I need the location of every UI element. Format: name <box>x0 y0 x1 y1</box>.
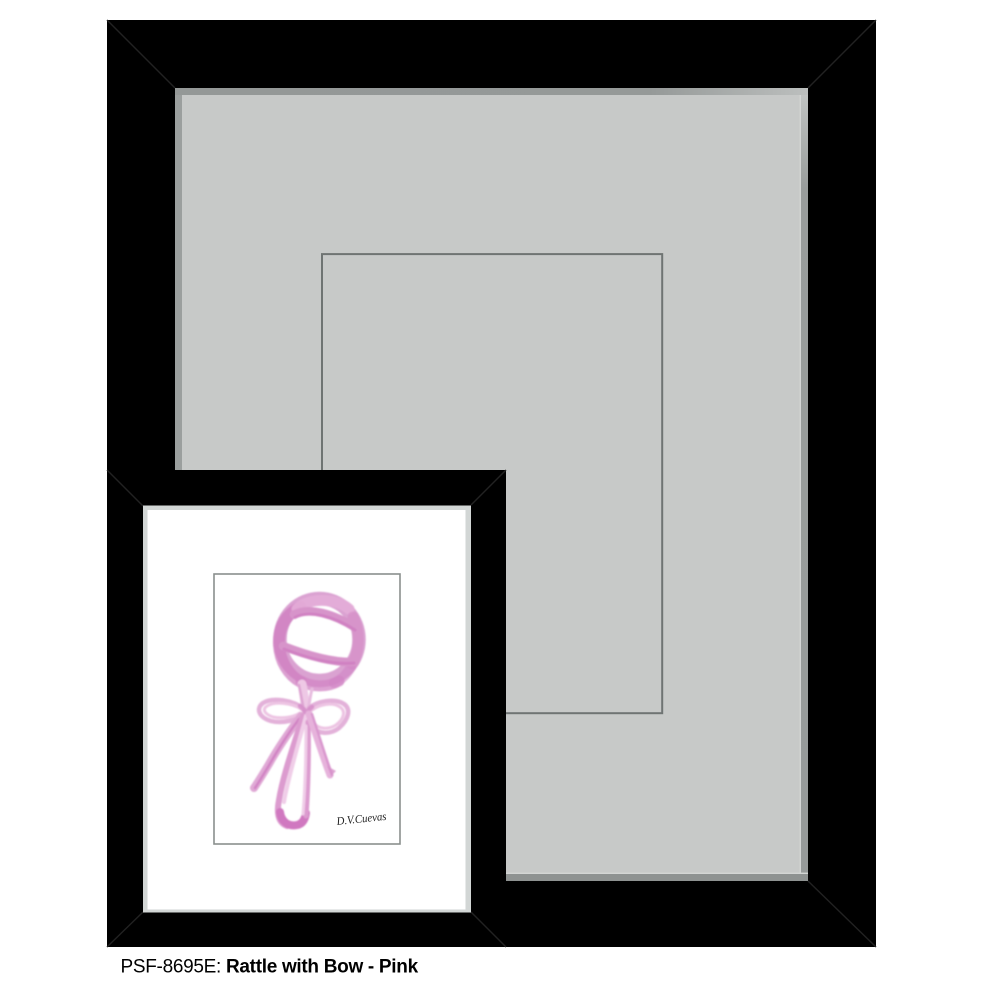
svg-text:PSF-8695E: Rattle with Bow - P: PSF-8695E: Rattle with Bow - Pink <box>121 957 419 978</box>
